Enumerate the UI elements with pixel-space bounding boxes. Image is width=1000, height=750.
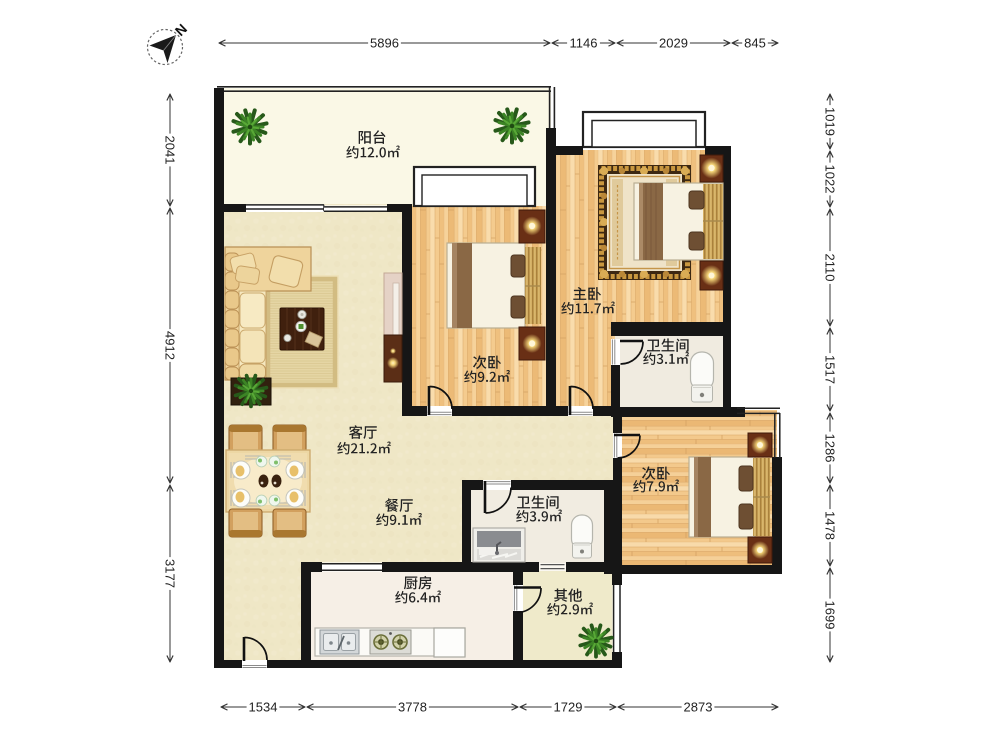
svg-text:845: 845 bbox=[744, 36, 766, 51]
svg-text:1729: 1729 bbox=[554, 700, 583, 715]
svg-text:2110: 2110 bbox=[823, 254, 838, 282]
svg-text:2873: 2873 bbox=[684, 700, 713, 715]
svg-text:2041: 2041 bbox=[163, 136, 178, 165]
svg-text:3177: 3177 bbox=[163, 559, 178, 588]
svg-text:1699: 1699 bbox=[823, 601, 838, 630]
svg-text:1534: 1534 bbox=[249, 700, 278, 715]
svg-text:1517: 1517 bbox=[823, 355, 838, 384]
svg-text:1478: 1478 bbox=[823, 511, 838, 540]
svg-text:1286: 1286 bbox=[823, 434, 838, 463]
svg-text:2029: 2029 bbox=[659, 36, 688, 51]
svg-text:3778: 3778 bbox=[398, 700, 427, 715]
svg-text:1022: 1022 bbox=[823, 165, 838, 194]
svg-text:5896: 5896 bbox=[370, 36, 399, 51]
svg-text:4912: 4912 bbox=[163, 331, 178, 360]
svg-text:1146: 1146 bbox=[570, 36, 598, 51]
svg-text:1019: 1019 bbox=[823, 107, 838, 136]
